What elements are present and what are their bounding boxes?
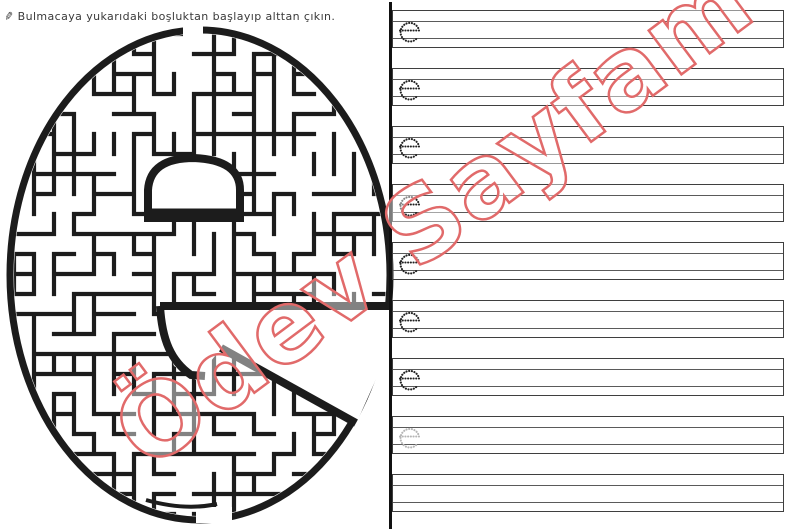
trace-letter-e	[396, 369, 426, 391]
practice-row	[392, 126, 784, 164]
ruled-line	[393, 38, 783, 39]
trace-letter-e	[396, 79, 426, 101]
maze-exit-gap	[196, 507, 232, 523]
practice-row	[392, 416, 784, 454]
ruled-line	[393, 96, 783, 97]
ruled-line	[393, 502, 783, 503]
practice-row	[392, 68, 784, 106]
ruled-line	[393, 328, 783, 329]
maze-entrance-gap	[183, 20, 203, 38]
ruled-line	[393, 311, 783, 312]
ruled-line	[393, 485, 783, 486]
practice-lines-panel	[392, 0, 784, 531]
trace-letter-e	[396, 195, 426, 217]
ruled-line	[393, 444, 783, 445]
practice-row	[392, 184, 784, 222]
trace-letter-e	[396, 21, 426, 43]
ruled-line	[393, 212, 783, 213]
trace-letter-e	[396, 137, 426, 159]
ruled-line	[393, 253, 783, 254]
practice-row	[392, 358, 784, 396]
practice-row	[392, 242, 784, 280]
trace-letter-e	[396, 311, 426, 333]
ruled-line	[393, 137, 783, 138]
ruled-line	[393, 154, 783, 155]
worksheet-page: ✎ Bulmacaya yukarıdaki boşluktan başlayı…	[0, 0, 792, 531]
ruled-line	[393, 79, 783, 80]
ruled-line	[393, 270, 783, 271]
ruled-line	[393, 386, 783, 387]
ruled-line	[393, 21, 783, 22]
ruled-line	[393, 427, 783, 428]
ruled-line	[393, 195, 783, 196]
ruled-line	[393, 369, 783, 370]
practice-row	[392, 474, 784, 512]
practice-row	[392, 10, 784, 48]
trace-letter-e	[396, 253, 426, 275]
practice-row	[392, 300, 784, 338]
trace-letter-e	[396, 427, 426, 449]
